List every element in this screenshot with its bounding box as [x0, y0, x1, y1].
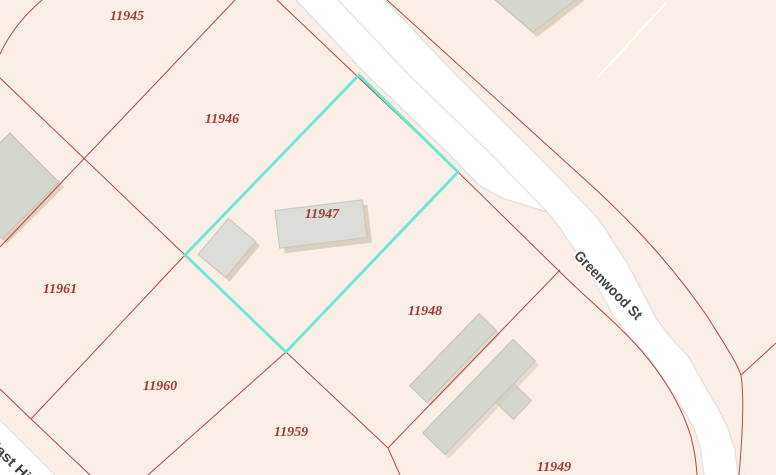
- svg-text:11948: 11948: [408, 304, 442, 319]
- svg-text:11945: 11945: [110, 9, 144, 24]
- svg-text:11946: 11946: [205, 112, 239, 127]
- svg-text:11961: 11961: [43, 282, 77, 297]
- svg-text:11959: 11959: [274, 425, 308, 440]
- svg-text:11947: 11947: [305, 207, 340, 222]
- svg-text:11960: 11960: [143, 379, 177, 394]
- svg-text:11949: 11949: [537, 460, 571, 475]
